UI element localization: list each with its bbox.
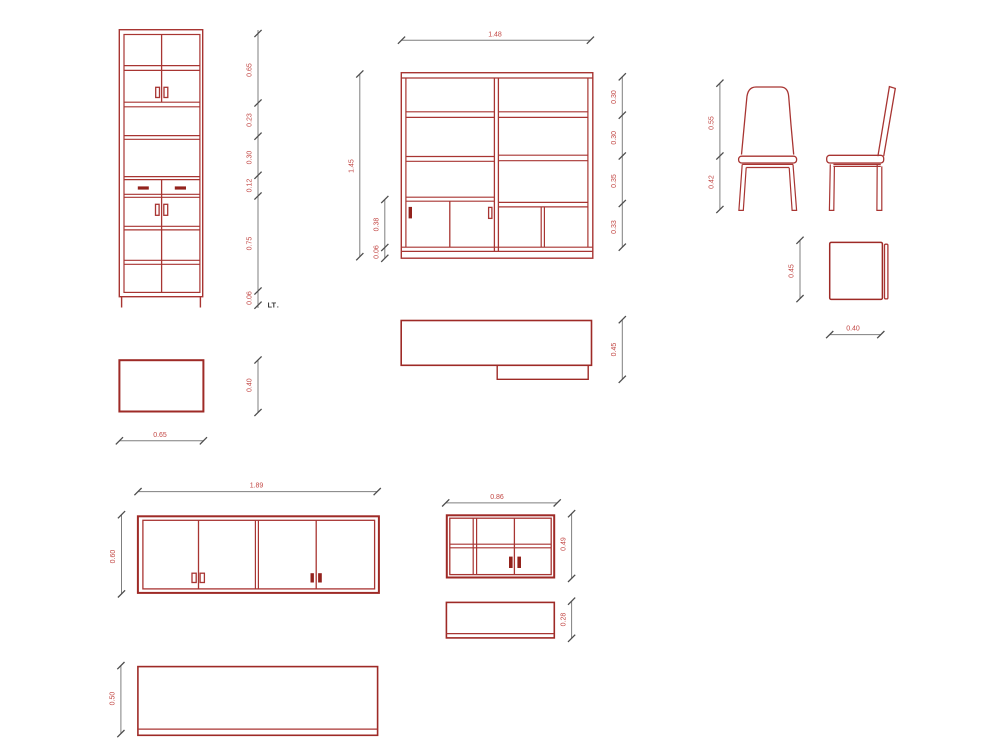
svg-text:0.65: 0.65	[153, 432, 167, 439]
svg-text:LT.: LT.	[268, 301, 279, 310]
svg-text:0.33: 0.33	[611, 220, 618, 234]
svg-text:0.49: 0.49	[560, 537, 567, 551]
svg-text:0.65: 0.65	[247, 63, 254, 77]
svg-text:0.45: 0.45	[611, 343, 618, 357]
svg-text:0.06: 0.06	[247, 291, 254, 305]
svg-text:0.40: 0.40	[247, 378, 254, 392]
svg-text:0.86: 0.86	[490, 494, 504, 501]
svg-text:1.48: 1.48	[488, 31, 502, 38]
svg-text:0.45: 0.45	[789, 264, 796, 278]
svg-text:1.45: 1.45	[348, 159, 355, 173]
svg-text:1.89: 1.89	[250, 482, 264, 489]
svg-text:0.60: 0.60	[110, 550, 117, 564]
svg-text:0.38: 0.38	[373, 218, 380, 232]
svg-text:0.12: 0.12	[247, 179, 254, 193]
svg-text:0.30: 0.30	[611, 131, 618, 145]
svg-text:0.40: 0.40	[846, 326, 860, 333]
svg-text:0.23: 0.23	[247, 113, 254, 127]
svg-text:0.06: 0.06	[373, 245, 380, 259]
svg-text:0.55: 0.55	[708, 116, 715, 130]
svg-text:0.75: 0.75	[247, 237, 254, 251]
svg-text:0.42: 0.42	[708, 175, 715, 189]
svg-text:0.28: 0.28	[560, 613, 567, 627]
svg-text:0.30: 0.30	[247, 151, 254, 165]
svg-text:0.30: 0.30	[611, 90, 618, 104]
svg-text:0.35: 0.35	[611, 174, 618, 188]
svg-text:0.50: 0.50	[109, 692, 116, 706]
